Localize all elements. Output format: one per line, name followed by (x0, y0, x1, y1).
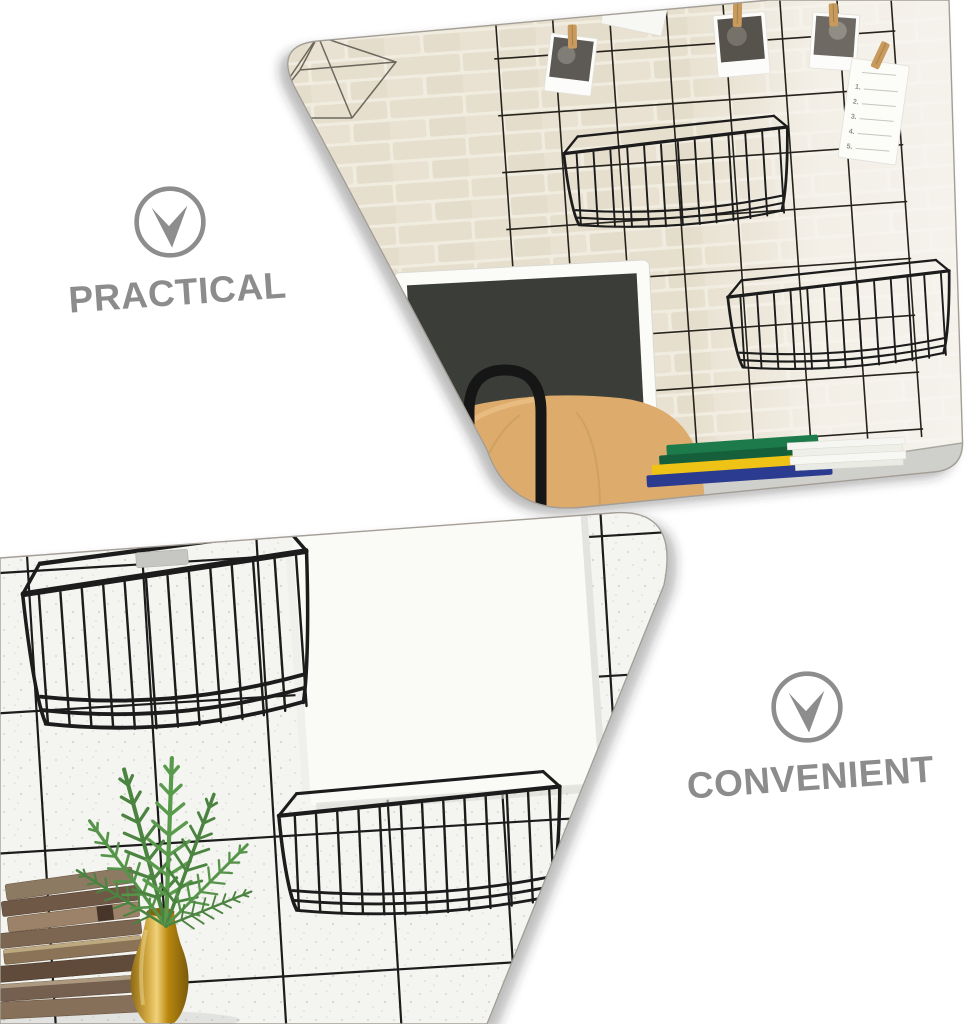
clothespin (733, 2, 742, 27)
svg-text:5.: 5. (846, 143, 853, 151)
books-stack (0, 867, 146, 1020)
svg-text:1.: 1. (854, 84, 861, 92)
clothespin (568, 24, 577, 48)
product-image: 1.2.3. 4.5. (0, 0, 976, 1024)
top-photo: 1.2.3. 4.5. (250, 0, 976, 540)
clothespin (829, 3, 839, 26)
paper-stack (787, 437, 906, 471)
down-arrow-icon (768, 668, 846, 746)
svg-text:2.: 2. (852, 99, 859, 107)
svg-text:4.: 4. (848, 128, 855, 136)
down-arrow-icon (131, 183, 209, 261)
product-collage-graphic: 1.2.3. 4.5. (0, 0, 976, 1024)
white-board (283, 495, 607, 812)
bottom-photo (0, 467, 698, 1024)
svg-text:3.: 3. (850, 113, 857, 121)
mounting-clip (136, 549, 189, 568)
